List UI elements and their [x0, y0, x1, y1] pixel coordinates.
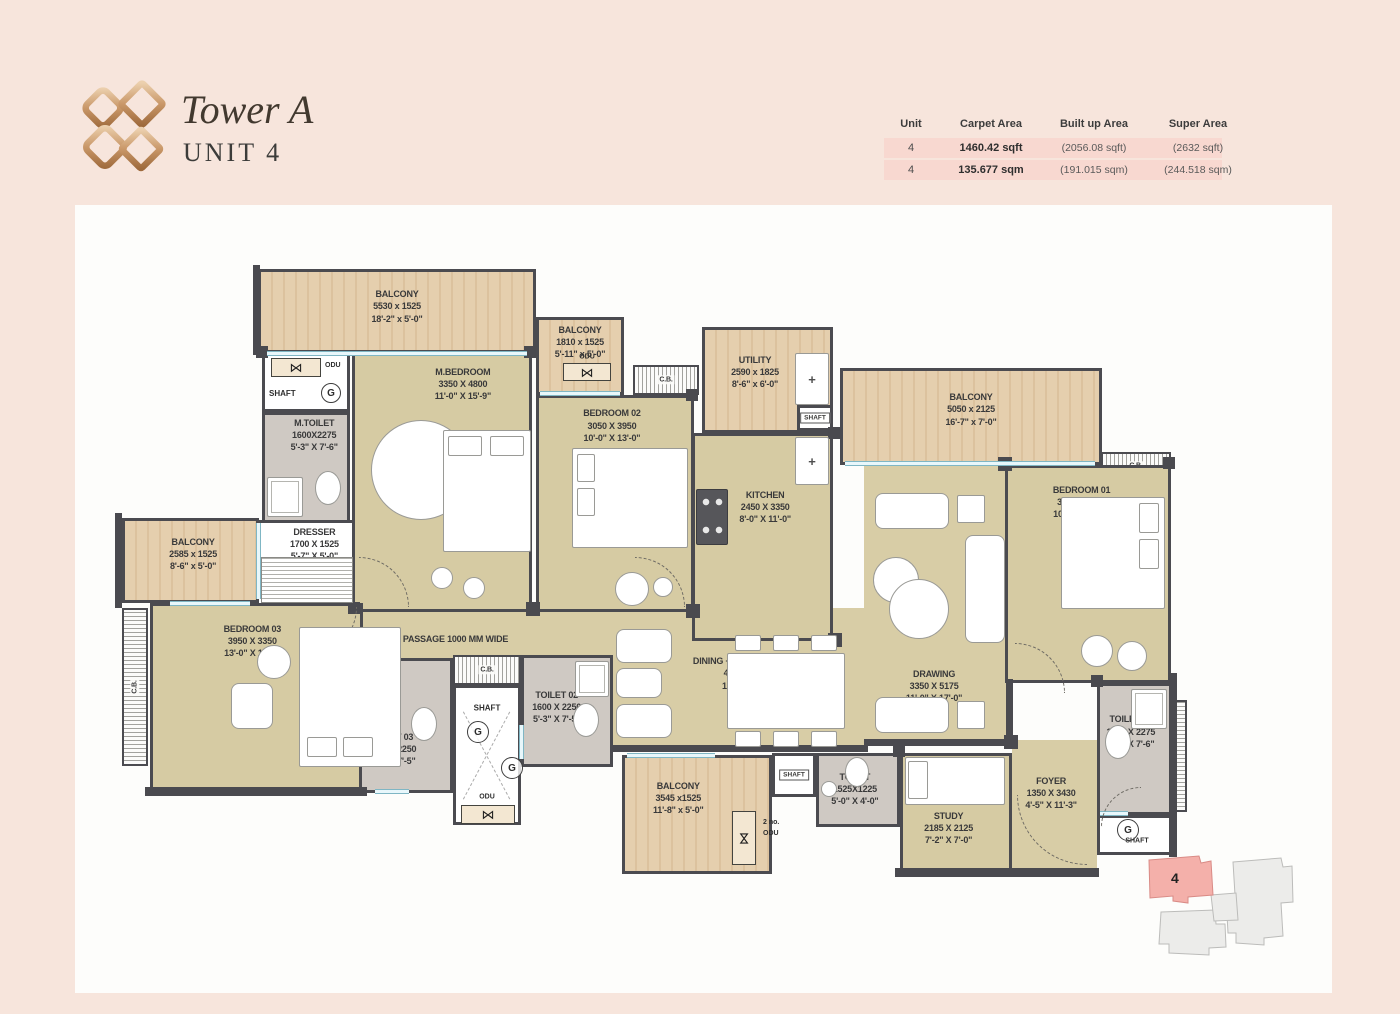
furniture-rect — [307, 737, 337, 757]
gas-point-marker: G — [321, 383, 341, 403]
furniture-circ — [653, 577, 673, 597]
furniture-rect — [1139, 539, 1159, 569]
furniture-plus: + — [795, 437, 829, 485]
furniture-rect — [1139, 503, 1159, 533]
plan-annotation: SHAFT — [474, 704, 501, 713]
shaft-tag: SHAFT — [779, 770, 809, 781]
odu-fan-icon: ⋈ — [732, 811, 756, 865]
furniture-rect — [811, 635, 837, 651]
shaft-tag: SHAFT — [800, 413, 830, 424]
table-cell: (244.518 sqm) — [1144, 164, 1252, 176]
window — [170, 601, 250, 606]
table-cell: (191.015 sqm) — [1044, 164, 1144, 176]
odu-fan-icon: ⋈ — [461, 805, 515, 824]
furniture-circ — [889, 579, 949, 639]
room-label-utility: UTILITY2590 x 18258'-6" x 6'-0" — [731, 354, 779, 390]
wall-pillar — [1163, 457, 1175, 469]
wall-segment — [864, 739, 1014, 746]
area-table: UnitCarpet AreaBuilt up AreaSuper Area41… — [884, 110, 1222, 180]
room-cb-left: C.B. — [122, 608, 148, 766]
plan-annotation: ODU — [325, 362, 341, 369]
furniture-rect — [773, 731, 799, 747]
furniture-sofa — [875, 697, 949, 733]
gold-diamonds-icon — [76, 80, 171, 175]
furniture-rect — [727, 653, 845, 729]
furniture-sofa — [616, 704, 672, 738]
wall-pillar — [686, 604, 700, 618]
furniture-ell — [411, 707, 437, 741]
window — [845, 461, 1095, 466]
table-cell: 135.677 sqm — [938, 164, 1044, 176]
furniture-rect — [811, 731, 837, 747]
furniture-rect — [448, 436, 482, 456]
furniture-ell — [315, 471, 341, 505]
room-label-m-toilet: M.TOILET1600X22755'-3" X 7'-6" — [291, 417, 338, 453]
col-header: Carpet Area — [938, 118, 1044, 130]
room-label-balcony-top-left: BALCONY5530 x 152518'-2" x 5'-0" — [371, 288, 422, 324]
col-header: Built up Area — [1044, 118, 1144, 130]
col-header: Super Area — [1144, 118, 1252, 130]
odu-fan-icon: ⋈ — [271, 358, 321, 377]
col-header: Unit — [884, 118, 938, 130]
wall-pillar — [893, 745, 905, 757]
plan-annotation: ODU — [579, 354, 595, 361]
wall-segment — [895, 868, 1099, 877]
furniture-circ — [257, 645, 291, 679]
furniture-sofa — [616, 668, 662, 698]
window — [540, 391, 620, 396]
page: { "header": { "title": "Tower A", "subti… — [0, 0, 1400, 1014]
furniture-rect — [957, 701, 985, 729]
furniture-circ — [1081, 635, 1113, 667]
room-balcony-top-left: BALCONY5530 x 152518'-2" x 5'-0" — [258, 269, 536, 353]
wall-segment — [1006, 679, 1013, 743]
furniture-sofa — [875, 493, 949, 529]
furniture-rect — [577, 488, 595, 516]
wall-pillar — [526, 602, 540, 616]
furniture-hatch — [261, 557, 353, 603]
room-label-passage: PASSAGE 1000 MM WIDE — [403, 633, 508, 645]
furniture-circ — [431, 567, 453, 589]
window — [267, 351, 527, 356]
room-label-kitchen: KITCHEN2450 X 33508'-0" X 11'-0" — [739, 488, 791, 524]
plan-annotation: ODU — [763, 830, 779, 837]
wall-segment — [253, 265, 260, 355]
furniture-circ — [615, 572, 649, 606]
table-row: 41460.42 sqft(2056.08 sqft)(2632 sqft) — [884, 138, 1222, 158]
room-label-study: STUDY2185 X 21257'-2" X 7'-0" — [924, 810, 973, 846]
page-title: Tower A — [181, 86, 313, 133]
furniture-shower — [575, 661, 609, 697]
room-label-cb-center: C.B. — [478, 665, 495, 674]
plan-annotation: SHAFT — [1125, 838, 1148, 845]
plan-annotation: 2 no. — [763, 819, 779, 826]
table-header-row: UnitCarpet AreaBuilt up AreaSuper Area — [884, 112, 1222, 136]
furniture-ell — [573, 703, 599, 737]
table-cell: (2056.08 sqft) — [1044, 142, 1144, 154]
furniture-rect — [957, 495, 985, 523]
table-cell: 4 — [884, 142, 938, 154]
room-label-balcony-left: BALCONY2585 x 15258'-6" x 5'-0" — [169, 536, 217, 572]
table-cell: (2632 sqft) — [1144, 142, 1252, 154]
wall-pillar — [1004, 735, 1018, 749]
furniture-plus: + — [795, 353, 829, 405]
wall-pillar — [828, 427, 840, 439]
room-label-m-bedroom: M.BEDROOM3350 X 480011'-0" X 15'-9" — [435, 366, 491, 402]
furniture-rect — [908, 761, 928, 799]
room-label-balcony-right: BALCONY5050 x 212516'-7" x 7'-0" — [945, 391, 996, 427]
room-label-bedroom-02: BEDROOM 023050 X 395010'-0" X 13'-0" — [583, 407, 641, 443]
wall-segment — [1169, 673, 1177, 857]
page-subtitle: UNIT 4 — [183, 138, 282, 168]
furniture-rect — [577, 454, 595, 482]
furniture-rect — [735, 635, 761, 651]
room-balcony-left: BALCONY2585 x 15258'-6" x 5'-0" — [122, 518, 259, 603]
key-plan: 4 — [1135, 850, 1335, 995]
furniture-circ — [1117, 641, 1147, 671]
room-label-balcony-bottom: BALCONY3545 x152511'-8" x 5'-0" — [653, 779, 704, 815]
furniture-rect — [735, 731, 761, 747]
furniture-sofa — [965, 535, 1005, 643]
furniture-shower — [1131, 689, 1167, 729]
room-cb-center: C.B. — [453, 655, 521, 685]
furniture-shower — [267, 477, 303, 517]
wall-pillar — [686, 389, 698, 401]
furniture-circ — [463, 577, 485, 599]
table-cell: 4 — [884, 164, 938, 176]
wall-pillar — [1091, 675, 1103, 687]
window — [375, 789, 409, 794]
furniture-sofa — [231, 683, 273, 729]
room-label-cb-left: C.B. — [130, 678, 139, 695]
room-label-cb-bedroom-02: C.B. — [657, 375, 674, 384]
key-plan-unit-highlight — [1149, 856, 1213, 903]
furniture-rect — [343, 737, 373, 757]
room-balcony-right: BALCONY5050 x 212516'-7" x 7'-0" — [840, 368, 1102, 465]
key-plan-unit-number: 4 — [1171, 870, 1179, 886]
furniture-ell — [1105, 725, 1131, 759]
table-row: 4135.677 sqm(191.015 sqm)(244.518 sqm) — [884, 160, 1222, 180]
furniture-rect — [773, 635, 799, 651]
gas-point-marker: G — [501, 757, 523, 779]
plan-annotation: ODU — [479, 794, 495, 801]
furniture-circ — [821, 781, 837, 797]
window — [627, 753, 715, 758]
gas-point-marker: G — [467, 721, 489, 743]
furniture-sofa — [616, 629, 672, 663]
brand-logo — [76, 80, 171, 180]
furniture-ell — [845, 757, 869, 787]
wall-segment — [145, 787, 367, 796]
window — [519, 725, 524, 759]
table-cell: 1460.42 sqft — [938, 142, 1044, 154]
furniture-stove — [696, 489, 728, 545]
plan-annotation: SHAFT — [269, 389, 296, 398]
plan-canvas: PASSAGE 1000 MM WIDEDINING + FAMILY LOUN… — [75, 205, 1332, 993]
odu-fan-icon: ⋈ — [563, 363, 611, 381]
wall-segment — [115, 513, 122, 608]
furniture-rect — [490, 436, 524, 456]
